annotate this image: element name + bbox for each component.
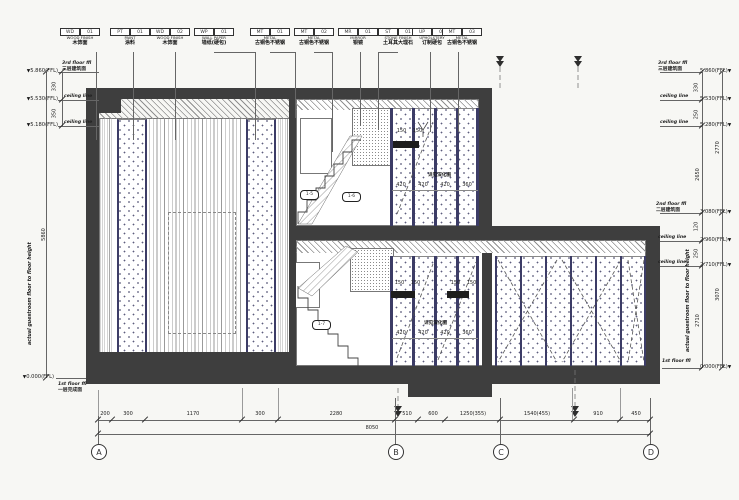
dim-value: 350 <box>52 109 57 119</box>
tag-leader <box>458 52 459 132</box>
level-label: ceiling line <box>64 120 92 126</box>
tag-leader <box>133 52 134 140</box>
grid-bubble-b: B <box>388 444 404 460</box>
detail-label-box <box>447 291 469 298</box>
tag-name-zh: 古铜色不锈钢 <box>248 41 292 47</box>
detail-callout: 1-7 <box>312 320 331 330</box>
level-line <box>58 100 99 101</box>
grid-line <box>500 398 501 444</box>
panel-width-dim: 420 <box>414 331 432 336</box>
dim-segment: 200 <box>95 412 115 417</box>
dim-segment: 300 <box>118 412 138 417</box>
level-value: ▼5.860(FFL) <box>10 68 58 74</box>
tag-leader <box>360 52 361 126</box>
panel-dim-150: 150 <box>392 281 407 286</box>
lower-stair-stringer <box>298 246 358 296</box>
dim-segment: 910 <box>588 412 608 417</box>
tag-leader <box>378 52 379 130</box>
dim-value: 3070 <box>716 288 721 301</box>
panel-width-dim: 360 <box>458 183 476 188</box>
level-line <box>662 368 702 369</box>
level-label: 2nd floor ffl二层建筑面 <box>656 202 686 213</box>
overall-dim: 8050 <box>356 426 388 431</box>
see-detail-note: 详见深化图 <box>428 172 451 178</box>
outer-dim-line <box>722 72 723 368</box>
detail-callout: 1-6 <box>342 192 361 202</box>
architectural-elevation-drawing: WD01 WOOD FINISH 木饰面 PT01 PAINT 涂料 WD02 … <box>0 0 739 500</box>
level-triangle-icon: ▼ <box>728 210 731 215</box>
tag-name-zh: 木饰面 <box>58 41 102 47</box>
panel-width-dim: 420 <box>436 331 454 336</box>
grid-bubble-a: A <box>91 444 107 460</box>
level-triangle-icon: ▼ <box>728 97 731 102</box>
dim-value: 250 <box>694 110 699 120</box>
material-tag-wood-finish-1: WD01 WOOD FINISH 木饰面 <box>58 28 102 47</box>
tag-name-en: MIRROR <box>338 36 378 40</box>
panel-dim-150: 150 <box>410 129 425 134</box>
dim-value: 2650 <box>696 168 701 181</box>
panel-dim-150: 150 <box>408 281 423 286</box>
dim-value: 250 <box>694 249 699 259</box>
level-line <box>660 126 702 127</box>
level-label: ceiling line <box>658 260 686 266</box>
dim-segment: 1250(355) <box>456 412 490 417</box>
tag-leader-elbow <box>314 52 332 53</box>
tag-name-en: WOOD FINISH <box>150 36 190 40</box>
material-tag-metal-3: MT03 METAL 古铜色不锈钢 <box>440 28 484 47</box>
level-value: 5.860(FFL)▼ <box>700 68 731 74</box>
detail-label-box <box>393 141 419 148</box>
level-label: ceiling line <box>658 235 686 241</box>
level-triangle-icon: ▼ <box>728 365 731 370</box>
dim-segment: 1170 <box>183 412 203 417</box>
tag-leader-elbow <box>270 52 295 53</box>
tag-name-en: PAINT <box>110 36 150 40</box>
floor-height-note: actual guestroom floor to floor height <box>686 249 691 352</box>
overall-dim-row-line <box>98 434 650 435</box>
panel-width-dim: 420 <box>392 183 410 188</box>
level-value: 2.960(FFL)▼ <box>700 237 731 243</box>
level-line <box>660 100 702 101</box>
grid-line <box>650 398 651 444</box>
level-line <box>56 378 86 379</box>
detail-callout: 1-5 <box>300 190 319 200</box>
level-value: ▼5.530(FFL) <box>14 96 58 102</box>
level-value: 0.000(FFL)▼ <box>700 364 731 370</box>
level-value: ▼5.180(FFL) <box>14 122 58 128</box>
dim-line <box>702 72 703 368</box>
grid-bubble-c: C <box>493 444 509 460</box>
dim-value: 330 <box>694 83 699 93</box>
level-label: ceiling line <box>660 120 688 126</box>
tag-name-en: WOOD FINISH <box>60 36 100 40</box>
level-value: 5.280(FFL)▼ <box>700 122 731 128</box>
dim-segment: 450 <box>626 412 646 417</box>
door-swing-dashes <box>397 122 644 362</box>
tag-name-en: METAL <box>294 36 334 40</box>
panel-dim-150: 150 <box>448 281 463 286</box>
tag-name-zh: 墙纸(硬包) <box>186 41 242 47</box>
material-tag-paint: PT01 PAINT 涂料 <box>108 28 152 47</box>
panel-width-dim: 360 <box>458 331 476 336</box>
dim-value: 2770 <box>716 141 721 154</box>
section-marker-line <box>398 67 578 406</box>
tag-leader <box>175 52 176 140</box>
level-triangle-icon: ▼ <box>728 238 731 243</box>
panel-width-dim: 420 <box>414 183 432 188</box>
tag-name-en: METAL <box>250 36 290 40</box>
tag-leader <box>295 52 296 118</box>
tag-name-zh: 涂料 <box>108 41 152 47</box>
tag-leader <box>430 52 431 132</box>
dim-value: 2710 <box>696 314 701 327</box>
dim-value: 330 <box>52 82 57 92</box>
floor-height-note: actual guestroom floor to floor height <box>28 242 33 345</box>
tag-leader-elbow <box>378 52 398 53</box>
tag-name-en: METAL <box>442 36 482 40</box>
level-value: 3.080(FFL)▼ <box>700 209 731 215</box>
level-label: 3rd floor ffl三层建筑面 <box>658 61 687 72</box>
level-label: 3rd floor ffl三层建筑面 <box>62 61 91 72</box>
dim-value: 120 <box>694 222 699 232</box>
level-triangle-icon: ▼ <box>728 123 731 128</box>
overall-dim-line <box>46 72 47 378</box>
material-tag-metal-1: MT01 METAL 古铜色不锈钢 <box>248 28 292 47</box>
level-label: 1st floor ffl <box>662 359 691 365</box>
tag-leader-elbow <box>214 52 255 53</box>
dim-segment: 510 <box>397 412 417 417</box>
level-value: 2.710(FFL)▼ <box>700 262 731 268</box>
dim-segment: 600 <box>423 412 443 417</box>
level-line <box>660 241 702 242</box>
panel-dim-150: 150 <box>394 129 409 134</box>
grid-bubble-d: D <box>643 444 659 460</box>
detail-label-box <box>391 291 415 298</box>
level-triangle-icon: ▼ <box>728 69 731 74</box>
grid-line <box>395 398 396 444</box>
dim-segment: 1540(455) <box>520 412 554 417</box>
level-line <box>58 126 99 127</box>
level-value: 5.530(FFL)▼ <box>700 96 731 102</box>
level-triangle-icon: ▼ <box>728 263 731 268</box>
dim-segment: 300 <box>250 412 270 417</box>
section-marker-icon <box>394 56 582 417</box>
level-label: 1st floor ffl一层完成面 <box>58 382 87 393</box>
dim-row-line <box>98 420 650 421</box>
tag-leader <box>332 52 333 152</box>
tag-name-en: WALL PAPER <box>188 36 240 40</box>
panel-width-dim: 420 <box>392 331 410 336</box>
tag-name-zh: 古铜色不锈钢 <box>440 41 484 47</box>
level-label: ceiling line <box>660 94 688 100</box>
level-value: ▼0.000(FFL) <box>6 374 54 380</box>
level-line <box>660 266 702 267</box>
panel-width-dim: 420 <box>436 183 454 188</box>
material-tag-metal-2: MT02 METAL 古铜色不锈钢 <box>292 28 336 47</box>
overall-dim-value: 5860 <box>42 228 47 241</box>
tag-name-zh: 古铜色不锈钢 <box>292 41 336 47</box>
dim-segment: 2280 <box>326 412 346 417</box>
tag-leader <box>255 52 256 140</box>
level-label: ceiling line <box>64 94 92 100</box>
panel-dim-150: 150 <box>464 281 479 286</box>
material-tag-wallpaper: WP01 WALL PAPER 墙纸(硬包) <box>186 28 242 47</box>
see-detail-note: 详见深化图 <box>424 320 447 326</box>
